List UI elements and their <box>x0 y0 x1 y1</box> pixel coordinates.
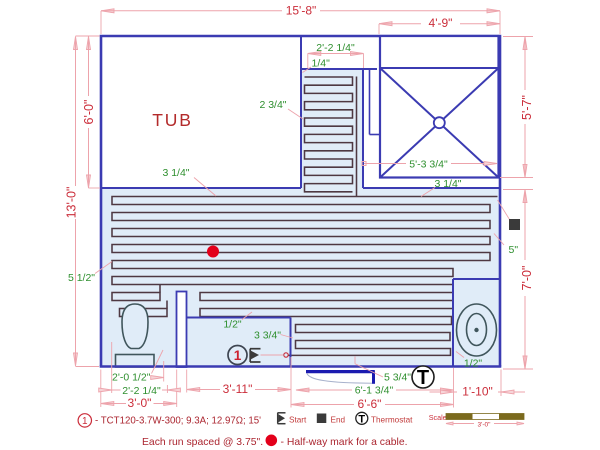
svg-text:Scale: Scale <box>429 413 447 422</box>
svg-text:TUB: TUB <box>152 110 192 130</box>
svg-text:3'-0": 3'-0" <box>128 396 152 410</box>
svg-text:End: End <box>331 416 346 425</box>
svg-text:5": 5" <box>509 244 519 256</box>
svg-text:6'-1 3/4": 6'-1 3/4" <box>355 385 394 397</box>
svg-text:1'-10": 1'-10" <box>462 385 493 399</box>
svg-text:13'-0": 13'-0" <box>65 187 79 219</box>
svg-text:2'-0 1/2": 2'-0 1/2" <box>112 372 151 384</box>
svg-text:1: 1 <box>234 348 242 363</box>
svg-text:1: 1 <box>82 416 88 427</box>
svg-text:3'-0": 3'-0" <box>478 422 492 429</box>
svg-text:7'-0": 7'-0" <box>520 266 534 291</box>
svg-text:2 3/4": 2 3/4" <box>259 99 286 111</box>
svg-text:6'-6": 6'-6" <box>358 397 382 411</box>
svg-text:T: T <box>358 413 365 425</box>
svg-text:5'-3 3/4": 5'-3 3/4" <box>409 159 448 171</box>
svg-text:Start: Start <box>289 416 307 425</box>
svg-text:15'-8": 15'-8" <box>286 3 317 17</box>
svg-text:5'-7": 5'-7" <box>520 95 534 120</box>
svg-text:3'-11": 3'-11" <box>223 382 253 396</box>
svg-text:1/2": 1/2" <box>464 358 483 370</box>
svg-text:1/4": 1/4" <box>312 58 331 70</box>
svg-text:- TCT120-3.7W-300; 9.3A; 12.97: - TCT120-3.7W-300; 9.3A; 12.97Ω; 15' <box>95 416 261 427</box>
svg-text:5 3/4": 5 3/4" <box>384 372 411 384</box>
svg-text:Each run spaced @ 3.75".: Each run spaced @ 3.75". <box>142 437 263 448</box>
svg-text:3 3/4": 3 3/4" <box>254 330 281 342</box>
svg-text:2'-2 1/4": 2'-2 1/4" <box>316 42 355 54</box>
svg-text:3 1/4": 3 1/4" <box>162 167 189 179</box>
svg-text:T: T <box>417 367 429 389</box>
svg-text:5 1/2": 5 1/2" <box>68 272 95 284</box>
svg-text:6'-0": 6'-0" <box>82 100 96 125</box>
svg-text:3 1/4": 3 1/4" <box>434 178 461 190</box>
svg-text:4'-9": 4'-9" <box>429 16 453 30</box>
svg-text:1/2": 1/2" <box>223 319 242 331</box>
svg-text:Thermostat: Thermostat <box>371 416 413 425</box>
svg-text:- Half-way mark for a cable.: - Half-way mark for a cable. <box>281 437 408 448</box>
